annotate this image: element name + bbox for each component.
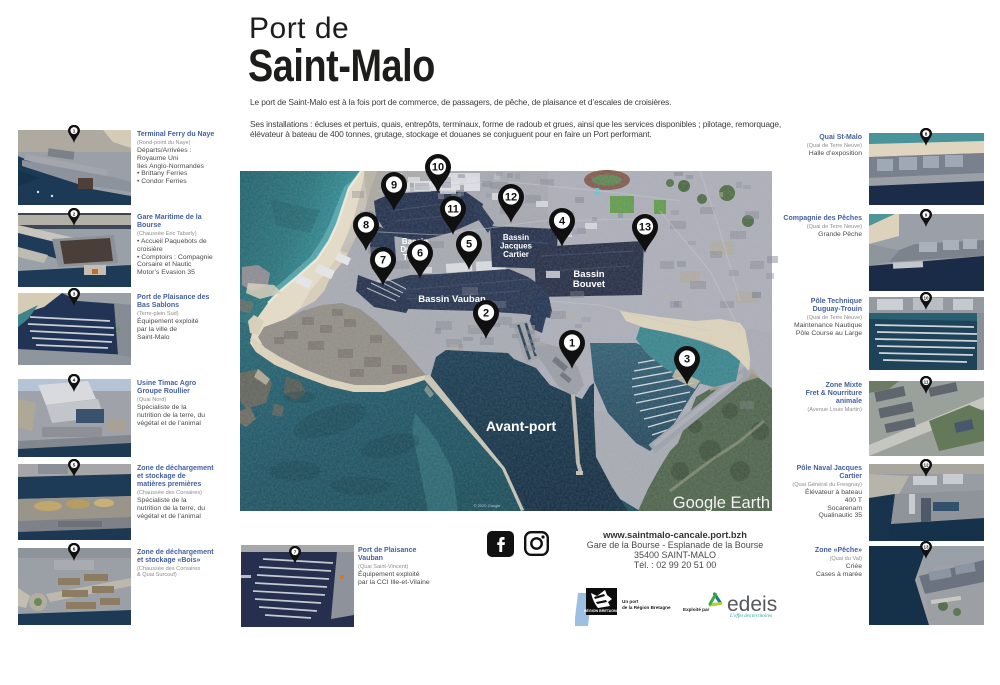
svg-text:2: 2 xyxy=(73,211,76,216)
svg-text:4: 4 xyxy=(73,377,76,382)
svg-text:8: 8 xyxy=(925,131,928,136)
svg-text:RÉGION BRETAGNE: RÉGION BRETAGNE xyxy=(584,608,620,613)
svg-text:8: 8 xyxy=(363,219,369,231)
svg-text:1: 1 xyxy=(73,128,76,133)
svg-text:10: 10 xyxy=(923,295,929,300)
svg-text:Un port: Un port xyxy=(622,599,639,604)
svg-text:10: 10 xyxy=(432,161,444,173)
svg-text:1: 1 xyxy=(569,337,575,349)
svg-text:7: 7 xyxy=(294,549,297,554)
svg-text:edeis: edeis xyxy=(727,593,777,616)
svg-text:7: 7 xyxy=(380,254,386,266)
svg-text:de la Région Bretagne: de la Région Bretagne xyxy=(622,605,671,610)
svg-text:L’effet des territoires: L’effet des territoires xyxy=(729,614,772,619)
svg-text:6: 6 xyxy=(73,546,76,551)
svg-text:13: 13 xyxy=(923,544,929,549)
svg-text:9: 9 xyxy=(925,212,928,217)
svg-text:3: 3 xyxy=(73,291,76,296)
svg-text:6: 6 xyxy=(417,247,423,259)
svg-text:12: 12 xyxy=(923,462,929,467)
svg-text:Exploité par: Exploité par xyxy=(683,607,710,612)
svg-text:3: 3 xyxy=(684,353,690,365)
svg-text:4: 4 xyxy=(559,215,566,227)
svg-text:5: 5 xyxy=(466,238,472,250)
svg-text:11: 11 xyxy=(924,379,929,384)
svg-text:9: 9 xyxy=(391,179,397,191)
svg-text:5: 5 xyxy=(73,462,76,467)
svg-text:13: 13 xyxy=(639,221,651,233)
svg-text:2: 2 xyxy=(483,307,489,319)
svg-text:12: 12 xyxy=(505,191,517,203)
svg-text:11: 11 xyxy=(447,203,459,215)
